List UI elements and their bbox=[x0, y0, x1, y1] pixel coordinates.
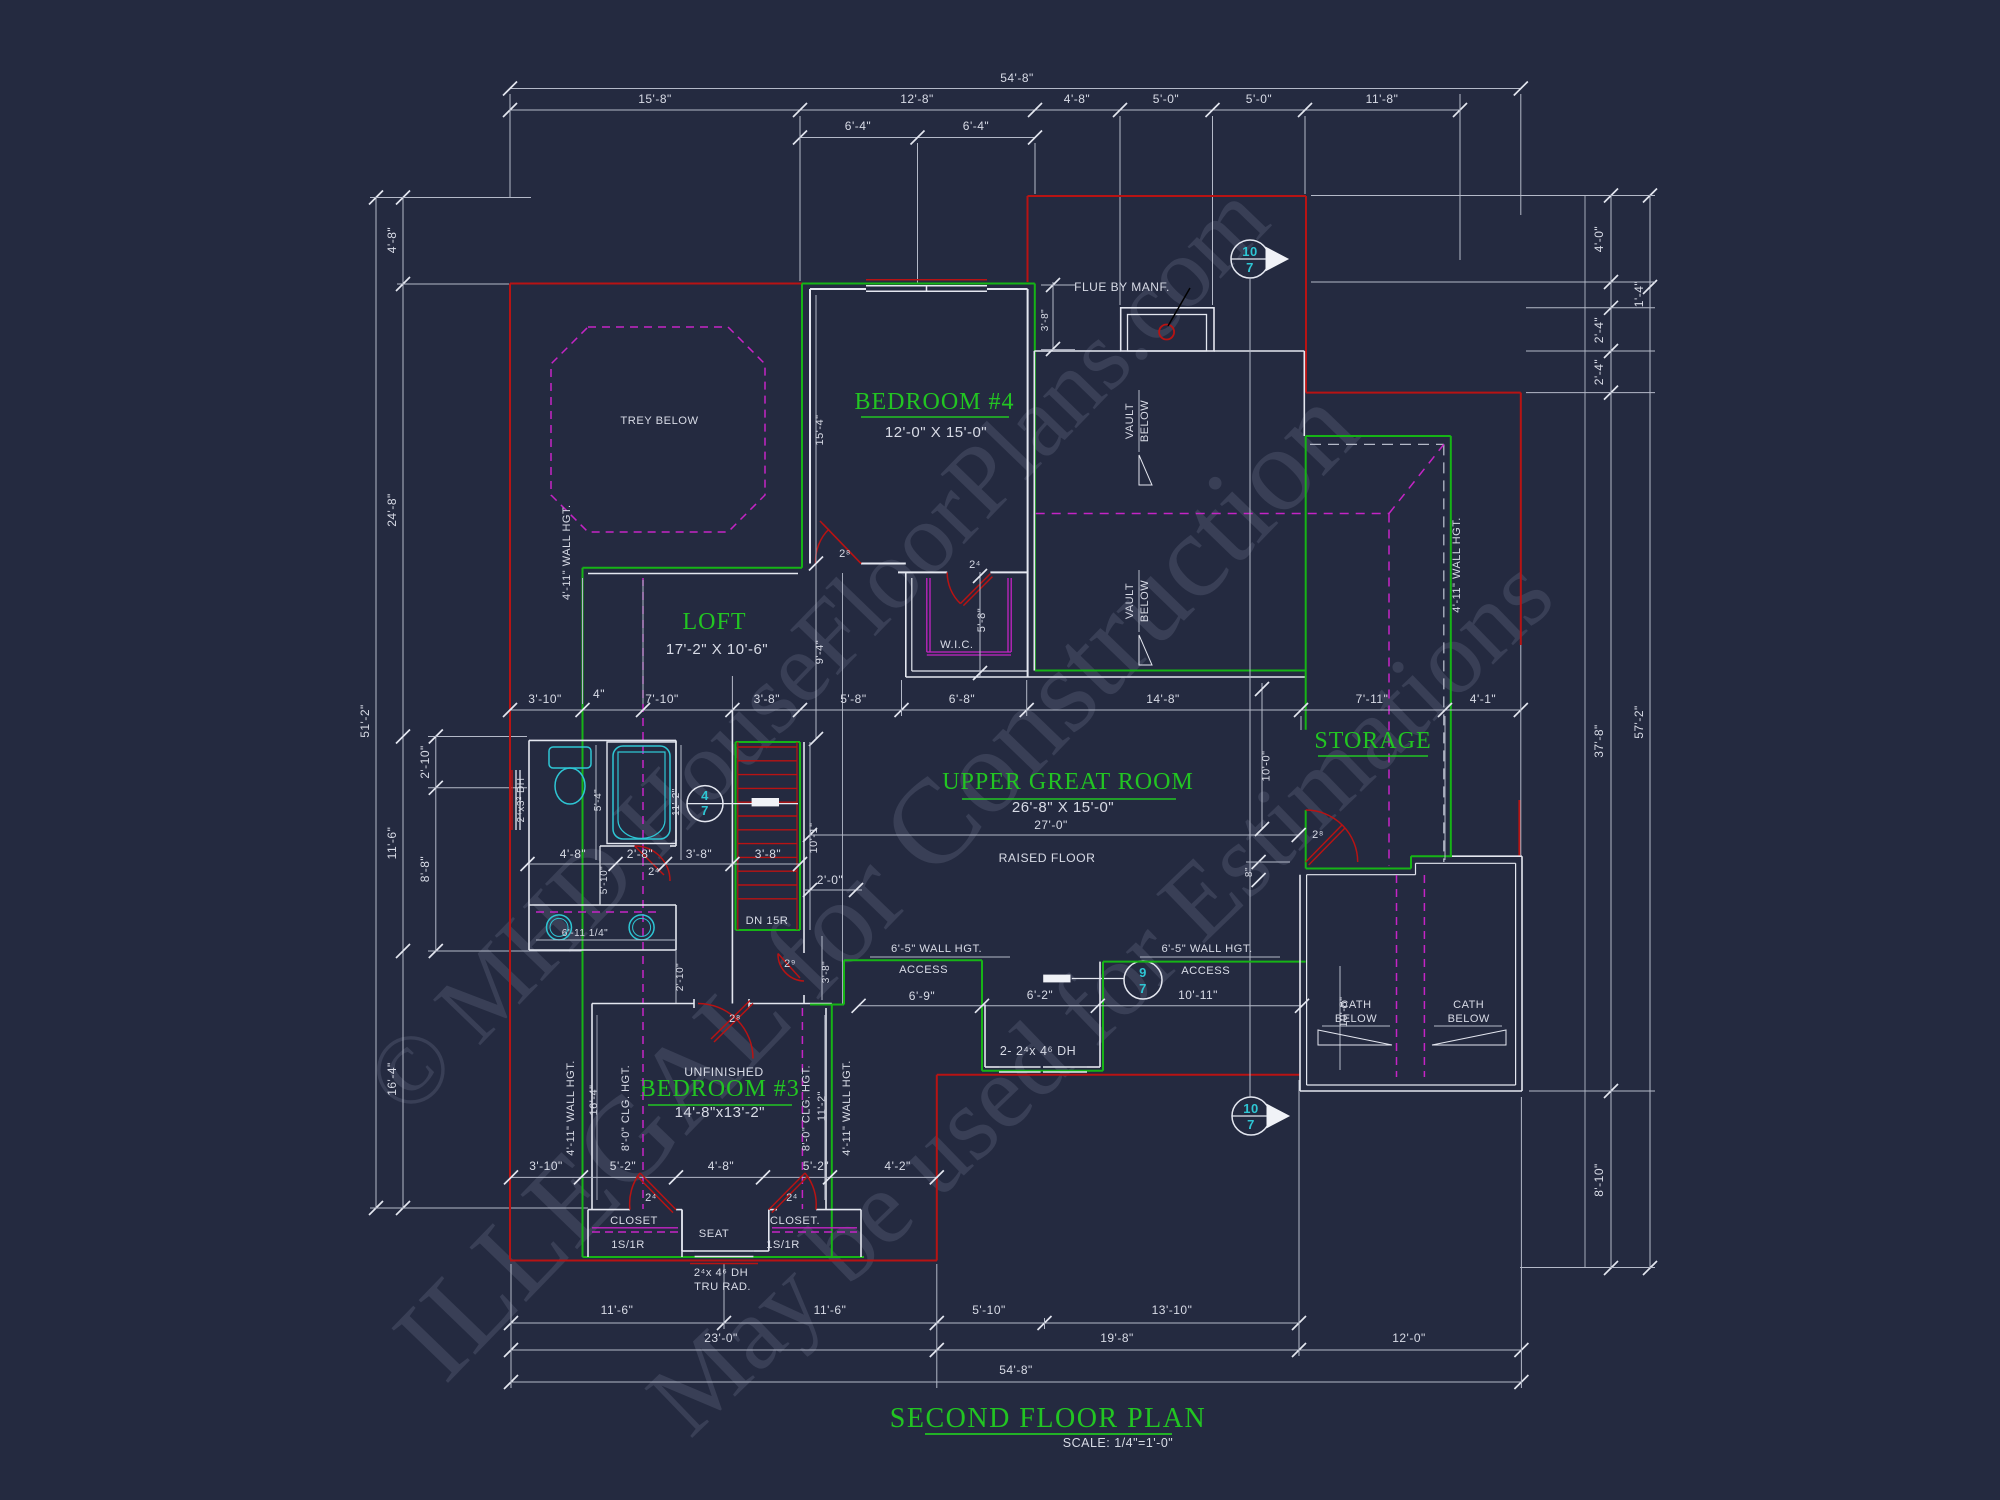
svg-text:5'-10": 5'-10" bbox=[599, 866, 610, 894]
svg-text:15'-4": 15'-4" bbox=[814, 414, 826, 445]
svg-text:11'-6": 11'-6" bbox=[385, 827, 399, 860]
svg-text:2⁴x3² DH: 2⁴x3² DH bbox=[516, 778, 527, 823]
svg-text:SCALE: 1/4"=1'-0": SCALE: 1/4"=1'-0" bbox=[1063, 1436, 1173, 1450]
svg-text:DN 15R: DN 15R bbox=[746, 915, 789, 927]
svg-text:11'-8": 11'-8" bbox=[1366, 92, 1399, 106]
svg-text:16'-4": 16'-4" bbox=[588, 1084, 600, 1115]
svg-text:3'-8": 3'-8" bbox=[686, 847, 712, 861]
svg-text:54'-8": 54'-8" bbox=[1000, 71, 1034, 85]
svg-text:8'-10": 8'-10" bbox=[1592, 1163, 1606, 1197]
svg-text:FLUE BY MANF.: FLUE BY MANF. bbox=[1074, 280, 1170, 294]
svg-text:3'-8": 3'-8" bbox=[1040, 309, 1051, 331]
svg-text:17'-2" X 10'-6": 17'-2" X 10'-6" bbox=[666, 641, 768, 658]
svg-text:2⁴: 2⁴ bbox=[648, 866, 660, 878]
svg-text:24'-8": 24'-8" bbox=[385, 493, 399, 527]
svg-text:2⁸: 2⁸ bbox=[839, 548, 851, 560]
svg-text:CLOSET.: CLOSET. bbox=[770, 1215, 820, 1227]
svg-text:CATH: CATH bbox=[1453, 999, 1484, 1011]
svg-text:2⁸: 2⁸ bbox=[1312, 829, 1324, 841]
svg-text:5'-2": 5'-2" bbox=[610, 1159, 636, 1173]
svg-text:2⁴x 4⁶ DH: 2⁴x 4⁶ DH bbox=[694, 1267, 748, 1279]
svg-text:26'-8" X 15'-0": 26'-8" X 15'-0" bbox=[1012, 799, 1114, 816]
svg-text:4'-11" WALL HGT.: 4'-11" WALL HGT. bbox=[1451, 517, 1463, 613]
svg-text:2'-0": 2'-0" bbox=[817, 873, 843, 887]
svg-text:ACCESS: ACCESS bbox=[1181, 965, 1230, 977]
svg-text:5'-8": 5'-8" bbox=[840, 692, 866, 706]
svg-text:7'-10": 7'-10" bbox=[645, 692, 679, 706]
svg-text:51'-2": 51'-2" bbox=[358, 704, 372, 738]
svg-text:5'-2": 5'-2" bbox=[803, 1159, 829, 1173]
svg-text:4'-8": 4'-8" bbox=[560, 847, 586, 861]
svg-text:CLOSET: CLOSET bbox=[610, 1215, 658, 1227]
svg-text:13'-10": 13'-10" bbox=[1152, 1303, 1193, 1317]
svg-text:5'-8": 5'-8" bbox=[976, 608, 988, 632]
svg-text:6'-4": 6'-4" bbox=[845, 119, 871, 133]
svg-text:4'-8": 4'-8" bbox=[385, 227, 399, 253]
svg-text:4'-11" WALL HGT.: 4'-11" WALL HGT. bbox=[561, 504, 573, 600]
svg-text:RAISED FLOOR: RAISED FLOOR bbox=[999, 851, 1096, 865]
svg-text:5'-0": 5'-0" bbox=[1246, 92, 1272, 106]
svg-text:2⁴: 2⁴ bbox=[645, 1192, 657, 1204]
svg-text:9: 9 bbox=[1139, 965, 1147, 980]
svg-text:2⁴: 2⁴ bbox=[969, 559, 981, 571]
svg-text:2'-4": 2'-4" bbox=[1592, 359, 1606, 385]
svg-text:4'-11" WALL HGT.: 4'-11" WALL HGT. bbox=[841, 1060, 853, 1156]
svg-text:1S/1R: 1S/1R bbox=[766, 1239, 800, 1251]
svg-text:VAULT: VAULT bbox=[1124, 403, 1136, 439]
svg-text:UPPER GREAT ROOM: UPPER GREAT ROOM bbox=[942, 769, 1194, 795]
svg-text:10'-0": 10'-0" bbox=[1261, 750, 1273, 781]
svg-text:23'-0": 23'-0" bbox=[704, 1331, 738, 1345]
svg-text:6'-4": 6'-4" bbox=[963, 119, 989, 133]
svg-text:LOFT: LOFT bbox=[683, 609, 747, 635]
svg-text:3'-10": 3'-10" bbox=[528, 692, 562, 706]
svg-text:12'-8": 12'-8" bbox=[900, 92, 934, 106]
svg-text:57'-2": 57'-2" bbox=[1632, 705, 1646, 739]
svg-text:4'-2": 4'-2" bbox=[884, 1159, 910, 1173]
svg-text:27'-0": 27'-0" bbox=[1034, 818, 1068, 832]
svg-text:BELOW: BELOW bbox=[1139, 580, 1151, 622]
svg-text:W.I.C.: W.I.C. bbox=[940, 639, 973, 651]
svg-text:6'-2": 6'-2" bbox=[1027, 988, 1053, 1002]
svg-text:6'-9": 6'-9" bbox=[909, 989, 935, 1003]
svg-text:11'-2": 11'-2" bbox=[671, 788, 682, 816]
svg-text:4'-8": 4'-8" bbox=[708, 1159, 734, 1173]
svg-text:6'-5" WALL HGT.: 6'-5" WALL HGT. bbox=[891, 943, 982, 955]
svg-text:11'-6": 11'-6" bbox=[601, 1303, 634, 1317]
svg-text:4": 4" bbox=[593, 687, 605, 701]
svg-text:2⁴: 2⁴ bbox=[786, 1192, 798, 1204]
svg-text:4: 4 bbox=[701, 788, 709, 803]
svg-text:19'-8": 19'-8" bbox=[1100, 1331, 1134, 1345]
svg-text:3'-8": 3'-8" bbox=[821, 961, 832, 983]
svg-text:1S/1R: 1S/1R bbox=[611, 1239, 645, 1251]
svg-text:14'-8": 14'-8" bbox=[1146, 692, 1180, 706]
svg-text:2⁹: 2⁹ bbox=[784, 958, 796, 970]
svg-text:12'-0": 12'-0" bbox=[1392, 1331, 1426, 1345]
svg-text:CATH: CATH bbox=[1340, 999, 1371, 1011]
svg-text:8'-8": 8'-8" bbox=[418, 856, 432, 882]
svg-text:16'-4": 16'-4" bbox=[385, 1062, 399, 1096]
svg-text:3'-8": 3'-8" bbox=[755, 847, 781, 861]
svg-text:5'-10": 5'-10" bbox=[972, 1303, 1006, 1317]
svg-text:STORAGE: STORAGE bbox=[1314, 728, 1431, 754]
svg-text:6'-11 1/4": 6'-11 1/4" bbox=[562, 928, 608, 939]
svg-text:2'-4": 2'-4" bbox=[1592, 317, 1606, 343]
svg-text:8'-0" CLG. HGT.: 8'-0" CLG. HGT. bbox=[800, 1065, 812, 1151]
svg-text:2'-10": 2'-10" bbox=[675, 963, 686, 991]
svg-text:5'-4": 5'-4" bbox=[593, 789, 604, 811]
svg-text:37'-8": 37'-8" bbox=[1592, 724, 1606, 758]
svg-text:BELOW: BELOW bbox=[1335, 1013, 1377, 1025]
svg-text:10'-1": 10'-1" bbox=[808, 822, 820, 853]
svg-text:10: 10 bbox=[1243, 1101, 1258, 1116]
svg-text:SECOND FLOOR PLAN: SECOND FLOOR PLAN bbox=[890, 1403, 1206, 1434]
svg-text:7'-11": 7'-11" bbox=[1356, 692, 1389, 706]
svg-text:3'-10": 3'-10" bbox=[529, 1159, 563, 1173]
svg-text:6'-8": 6'-8" bbox=[949, 692, 975, 706]
svg-text:BELOW: BELOW bbox=[1448, 1013, 1490, 1025]
svg-text:BELOW: BELOW bbox=[1139, 400, 1151, 442]
svg-text:7: 7 bbox=[1246, 260, 1254, 275]
svg-text:7: 7 bbox=[1247, 1117, 1255, 1132]
svg-text:2⁸: 2⁸ bbox=[729, 1013, 741, 1025]
svg-text:10'-11": 10'-11" bbox=[1178, 988, 1218, 1002]
svg-text:4'-0": 4'-0" bbox=[1592, 226, 1606, 252]
svg-text:ACCESS: ACCESS bbox=[899, 964, 948, 976]
svg-text:VAULT: VAULT bbox=[1124, 583, 1136, 619]
svg-text:BEDROOM #3: BEDROOM #3 bbox=[640, 1076, 800, 1102]
svg-text:12'-0" X 15'-0": 12'-0" X 15'-0" bbox=[885, 424, 987, 441]
svg-text:7: 7 bbox=[701, 803, 709, 818]
svg-text:1'-4": 1'-4" bbox=[1632, 281, 1646, 307]
svg-text:TRU RAD.: TRU RAD. bbox=[694, 1281, 751, 1293]
svg-text:9'-4": 9'-4" bbox=[814, 640, 826, 664]
svg-text:8'-0" CLG. HGT.: 8'-0" CLG. HGT. bbox=[620, 1065, 632, 1151]
svg-text:2- 2⁴x 4⁶ DH: 2- 2⁴x 4⁶ DH bbox=[1000, 1044, 1076, 1058]
svg-text:10: 10 bbox=[1242, 244, 1257, 259]
svg-text:7: 7 bbox=[1139, 981, 1147, 996]
svg-text:14'-8"x13'-2": 14'-8"x13'-2" bbox=[675, 1104, 765, 1121]
svg-text:3'-8": 3'-8" bbox=[754, 692, 780, 706]
svg-text:TREY BELOW: TREY BELOW bbox=[620, 415, 698, 427]
svg-text:4'-1": 4'-1" bbox=[1470, 692, 1496, 706]
svg-text:BEDROOM #4: BEDROOM #4 bbox=[854, 389, 1014, 415]
svg-text:6'-5" WALL HGT.: 6'-5" WALL HGT. bbox=[1161, 943, 1252, 955]
svg-text:2'-10": 2'-10" bbox=[418, 745, 432, 779]
svg-text:SEAT: SEAT bbox=[699, 1228, 729, 1240]
svg-text:4'-11" WALL HGT.: 4'-11" WALL HGT. bbox=[565, 1060, 577, 1156]
svg-text:11'-6": 11'-6" bbox=[814, 1303, 847, 1317]
svg-text:5'-0": 5'-0" bbox=[1153, 92, 1179, 106]
svg-text:15'-8": 15'-8" bbox=[638, 92, 672, 106]
svg-text:4'-8": 4'-8" bbox=[1064, 92, 1090, 106]
svg-text:2'-8": 2'-8" bbox=[627, 847, 653, 861]
svg-text:11'-2": 11'-2" bbox=[816, 1091, 828, 1121]
svg-text:54'-8": 54'-8" bbox=[999, 1363, 1033, 1377]
